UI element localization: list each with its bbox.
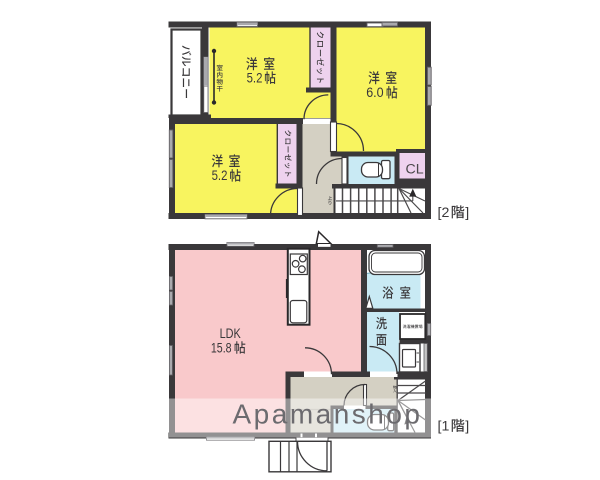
svg-text:]: ]	[465, 419, 469, 435]
svg-text:[1: [1	[438, 419, 450, 435]
svg-text:5.2: 5.2	[212, 168, 228, 184]
svg-text:5.2: 5.2	[247, 71, 263, 87]
svg-text:]: ]	[465, 205, 469, 221]
svg-text:Apamanshop: Apamanshop	[233, 399, 423, 430]
svg-text:15.8: 15.8	[211, 339, 232, 355]
svg-text:[2: [2	[438, 205, 450, 221]
svg-text:CL: CL	[406, 162, 424, 178]
svg-text:6.0: 6.0	[366, 85, 383, 101]
